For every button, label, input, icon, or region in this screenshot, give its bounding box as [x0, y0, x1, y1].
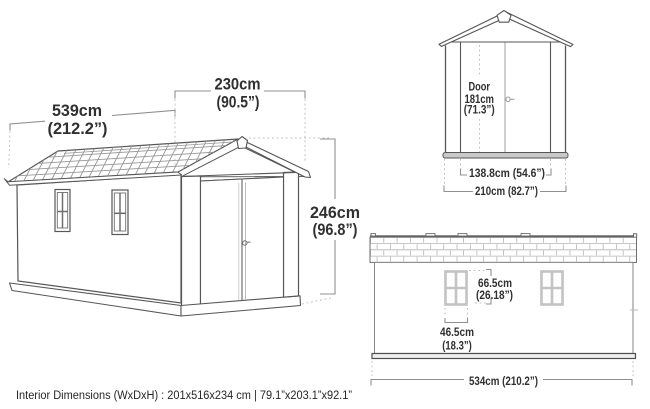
svg-text:210cm (82.7”): 210cm (82.7”) [475, 184, 538, 198]
svg-text:46.5cm: 46.5cm [440, 325, 474, 339]
svg-text:(212.2”): (212.2”) [48, 119, 108, 138]
svg-text:534cm (210.2”): 534cm (210.2”) [469, 374, 538, 388]
svg-text:Interior Dimensions (WxDxH) :: Interior Dimensions (WxDxH) : 201x516x23… [16, 390, 352, 402]
svg-text:(71.3”): (71.3”) [464, 102, 495, 116]
svg-text:138.8cm (54.6”): 138.8cm (54.6”) [469, 166, 545, 180]
svg-text:539cm: 539cm [52, 101, 102, 120]
svg-text:230cm: 230cm [215, 75, 261, 94]
svg-text:(90.5”): (90.5”) [217, 93, 260, 112]
svg-text:(96.8”): (96.8”) [313, 220, 358, 239]
svg-text:(26.18”): (26.18”) [476, 288, 513, 302]
svg-text:(18.3”): (18.3”) [442, 339, 472, 353]
